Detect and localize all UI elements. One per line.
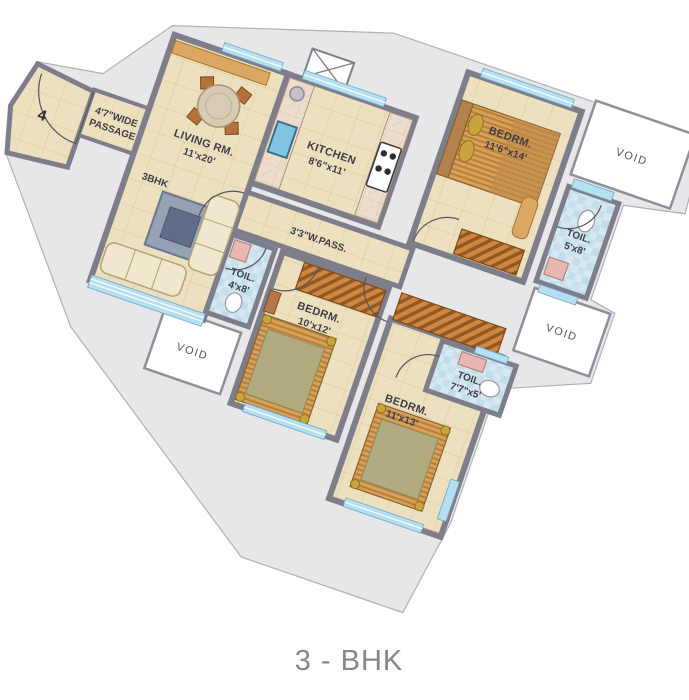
- floor-plan-page: 4 4'7"WIDE PASSAGE 3BHK LIVING RM. 11'x2…: [0, 0, 689, 700]
- plan-title: 3 - BHK: [295, 645, 404, 677]
- floor-plan-drawing: 4 4'7"WIDE PASSAGE 3BHK LIVING RM. 11'x2…: [0, 0, 689, 700]
- rotated-plan-group: 4 4'7"WIDE PASSAGE 3BHK LIVING RM. 11'x2…: [0, 0, 689, 657]
